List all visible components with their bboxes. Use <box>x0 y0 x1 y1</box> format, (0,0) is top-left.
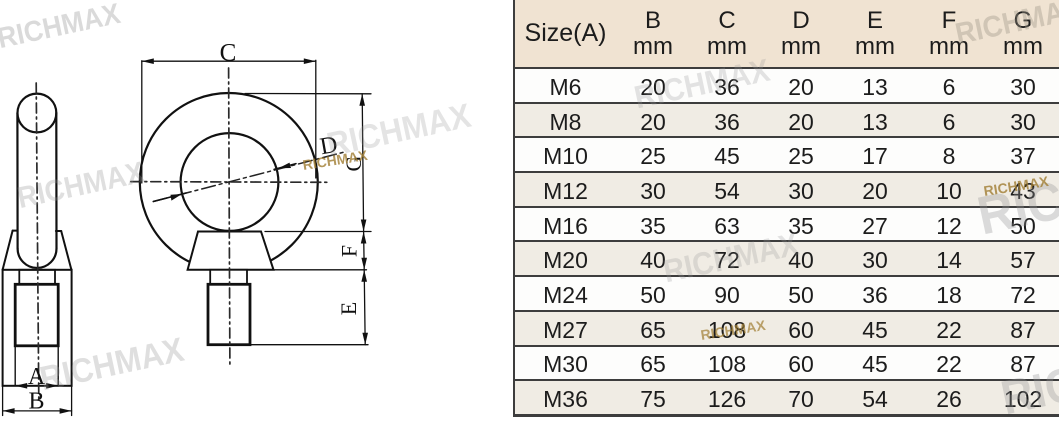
svg-text:F: F <box>337 245 362 257</box>
svg-text:G: G <box>341 155 366 171</box>
svg-text:B: B <box>28 389 44 415</box>
svg-text:A: A <box>28 364 46 390</box>
svg-text:C: C <box>220 40 237 67</box>
svg-text:E: E <box>336 302 361 315</box>
svg-text:D: D <box>318 132 340 161</box>
